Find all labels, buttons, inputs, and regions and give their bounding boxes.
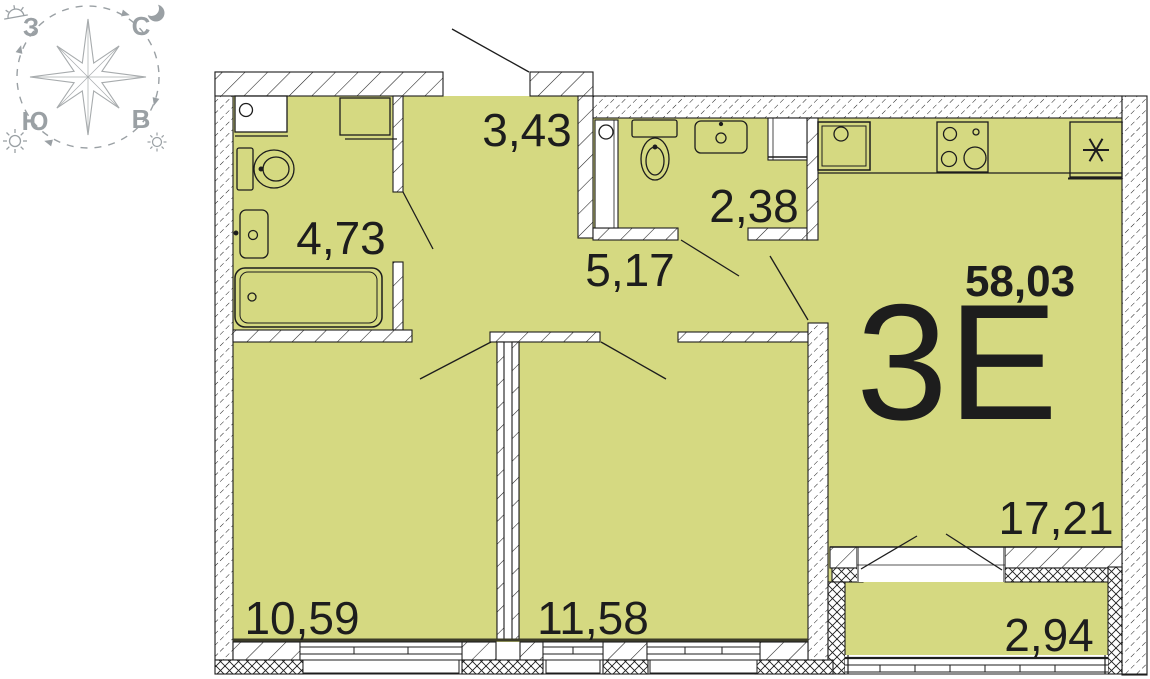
room-area-label-balcony: 2,94 [1004,609,1094,661]
wall-segment [233,642,300,660]
wall-segment [760,642,808,660]
wall-segment [215,72,233,660]
compass-south-label: Ю [22,106,49,136]
wall-segment [830,547,857,568]
wall-segment [462,660,543,674]
room-area-label-room2: 11,58 [537,592,649,644]
room-area-label-hallway: 3,43 [482,104,572,156]
floor-plan-svg: З С Ю В [0,0,1150,679]
wall-segment [1122,96,1147,675]
wall-segment [1005,547,1122,568]
room-area-label-wc: 2,38 [709,180,799,232]
entrance-door-swing [452,29,529,72]
floor-plan-page: З С Ю В [0,0,1150,679]
washing-machine-icon [235,96,288,136]
sun-icon [148,133,167,152]
wall-segment [1108,567,1122,674]
wall-segment [530,72,593,96]
wall-segment [807,118,818,240]
wall-segment [593,96,1122,118]
wall-segment [593,228,678,240]
wall-segment [578,96,593,238]
compass-east-label: В [132,104,151,134]
window [543,642,603,673]
wall-segment [1005,568,1122,582]
wall-segment [678,332,808,342]
duct-shaft [595,120,618,228]
wall-segment [462,642,496,660]
wall-segment [808,323,828,674]
room-area-label-room1: 10,59 [244,592,359,644]
room-area-label-corridor: 5,17 [585,244,675,296]
wall-segment [603,660,648,674]
apartment-type-label: 3Е [856,270,1058,454]
compass-north-label: С [132,11,151,41]
wall-segment [393,262,403,330]
wall-segment [215,72,443,96]
room-area-label-bathroom: 4,73 [296,212,386,264]
balcony-door-opening [857,547,1005,582]
wall-segment [603,642,647,660]
window [300,642,462,673]
wall-segment [215,660,303,674]
window [647,642,760,673]
wall-segment [233,330,412,342]
compass-rose: З С Ю В [2,1,166,153]
wall-segment [497,342,519,640]
compass-west-label: З [23,12,39,42]
wall-segment [755,660,833,674]
wall-segment [490,332,600,342]
vent-shaft [768,118,807,160]
room-area-label-kitchen-living: 17,21 [998,492,1113,544]
sun-rays-icon [3,129,27,153]
wall-segment [393,96,403,192]
wall-segment [520,642,543,660]
